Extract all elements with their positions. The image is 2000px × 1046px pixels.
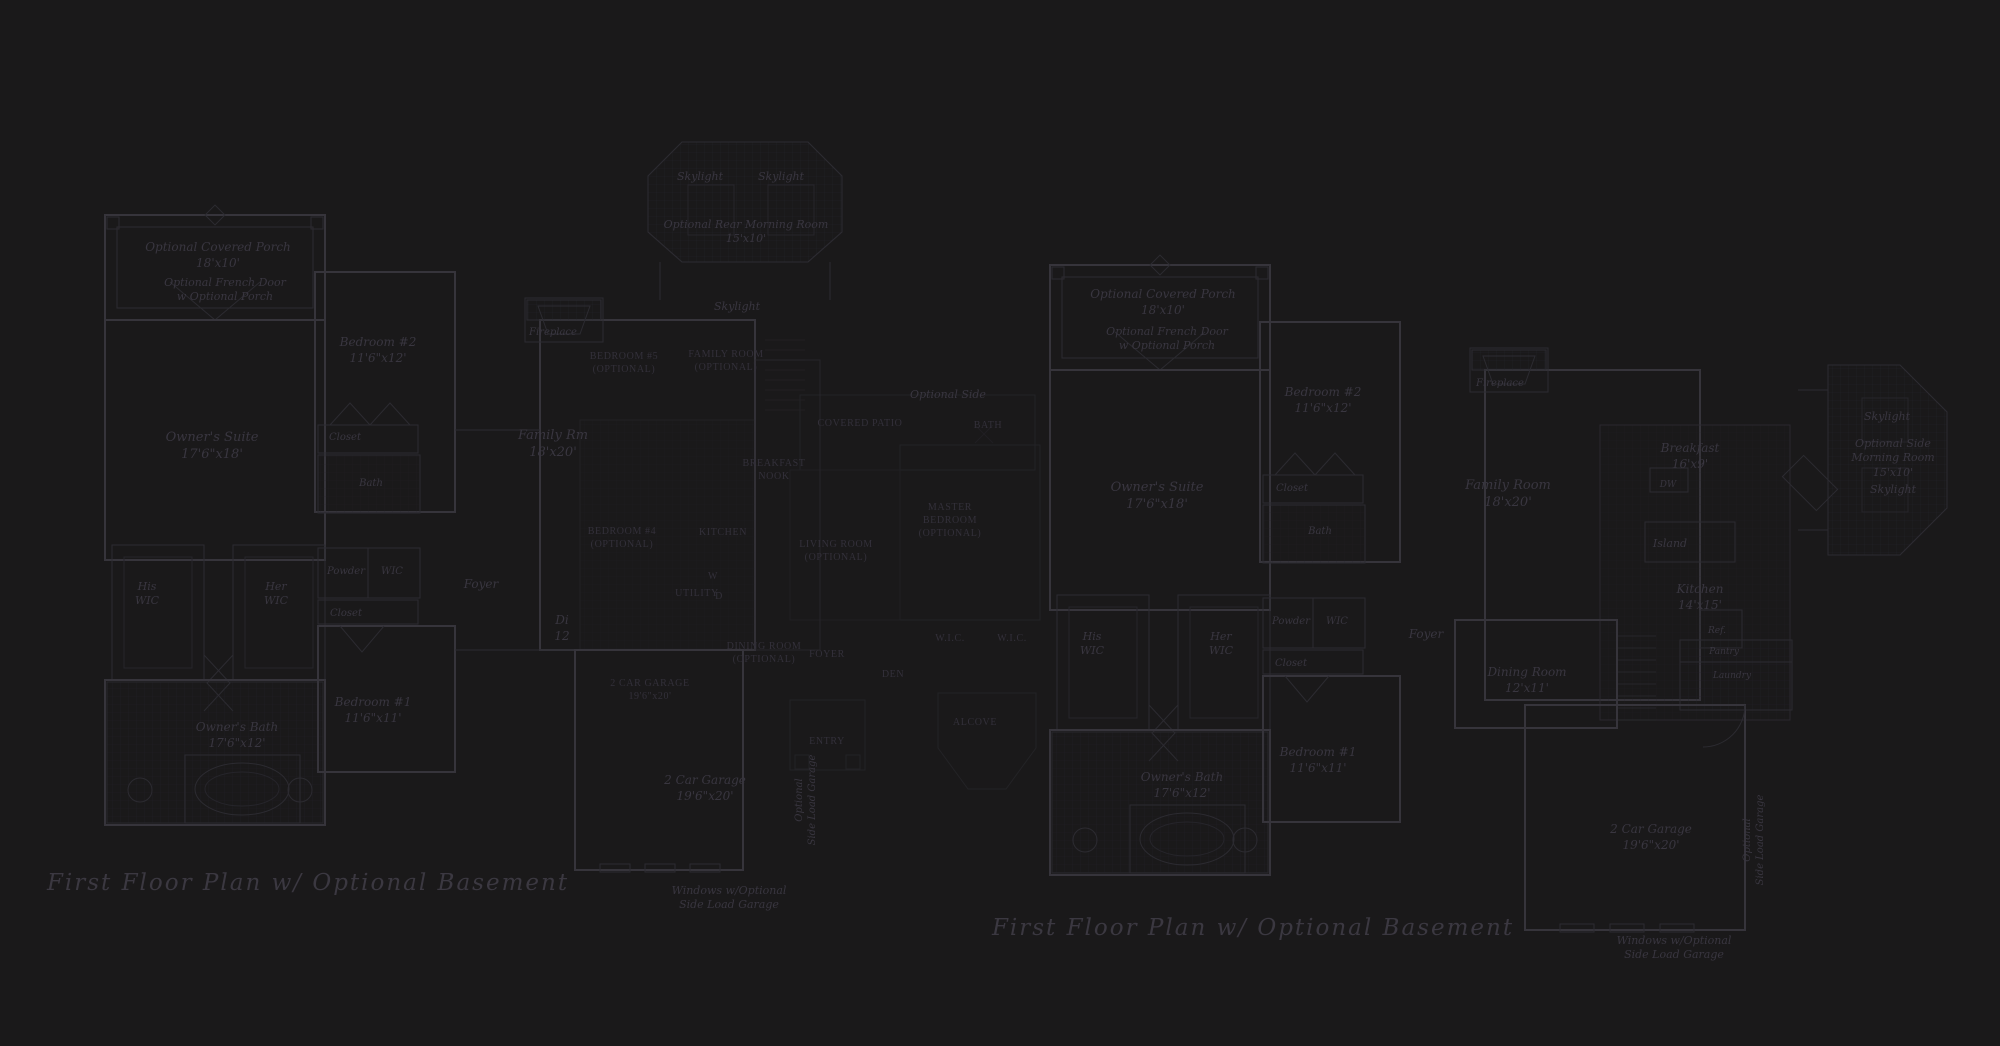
room-label-owners-bath: Owner's Bath17'6"x12' (1141, 770, 1223, 801)
room-label-island: Island (1653, 537, 1687, 551)
room-label-breakfast: Breakfast16'x9' (1661, 441, 1720, 472)
room-label-closet: Closet (1276, 482, 1308, 495)
room-label-skylight-2: Skylight (1870, 483, 1916, 497)
room-label-closet-2: Closet (1275, 657, 1307, 670)
room-label-dw: DW (1660, 480, 1676, 492)
room-label-foyer: Foyer (1409, 627, 1444, 643)
page-background: { "page": { "background_color": "#1a191a… (0, 0, 2000, 1046)
room-label-car-garage: 2 Car Garage19'6"x20' (1610, 822, 1692, 853)
room-label-pantry: Pantry (1709, 647, 1739, 659)
room-label-powder: Powder (1272, 615, 1310, 628)
room-label-bedroom-2: Bedroom #211'6"x12' (1285, 385, 1362, 416)
room-label-bedroom-1: Bedroom #111'6"x11' (1280, 745, 1357, 776)
room-label-family-room: Family Room18'x20' (1465, 478, 1551, 512)
room-label-optional-covered-porch: Optional Covered Porch18'x10' (1090, 287, 1236, 318)
room-label-her-wic: HerWIC (1209, 630, 1233, 659)
room-label-dining-room: Dining Room12'x11' (1487, 665, 1566, 696)
room-label-kitchen: Kitchen14'x15' (1677, 582, 1724, 613)
room-label-fireplace: Fireplace (1476, 377, 1524, 390)
room-label-wic: WIC (1326, 615, 1348, 628)
room-label-his-wic: HisWIC (1080, 630, 1104, 659)
room-label-windows-note: Windows w/OptionalSide Load Garage (1617, 934, 1732, 963)
room-label-owners-suite: Owner's Suite17'6"x18' (1111, 480, 1204, 514)
left-plan-title: First Floor Plan w/ Optional Basement (47, 870, 569, 896)
room-label-optional-french-door: Optional French Doorw Optional Porch (1106, 325, 1228, 354)
room-label-ref: Ref. (1708, 626, 1726, 638)
room-label-optional-side-morning-room: Optional SideMorning Room15'x10' (1851, 437, 1934, 480)
room-label-bath: Bath (1308, 525, 1332, 538)
right-plan-title: First Floor Plan w/ Optional Basement (992, 915, 1514, 941)
room-label-skylight-1: Skylight (1864, 410, 1910, 424)
room-label-side-load-garage-vertical: OptionalSide Load Garage (1741, 795, 1767, 886)
room-label-laundry: Laundry (1713, 671, 1751, 683)
